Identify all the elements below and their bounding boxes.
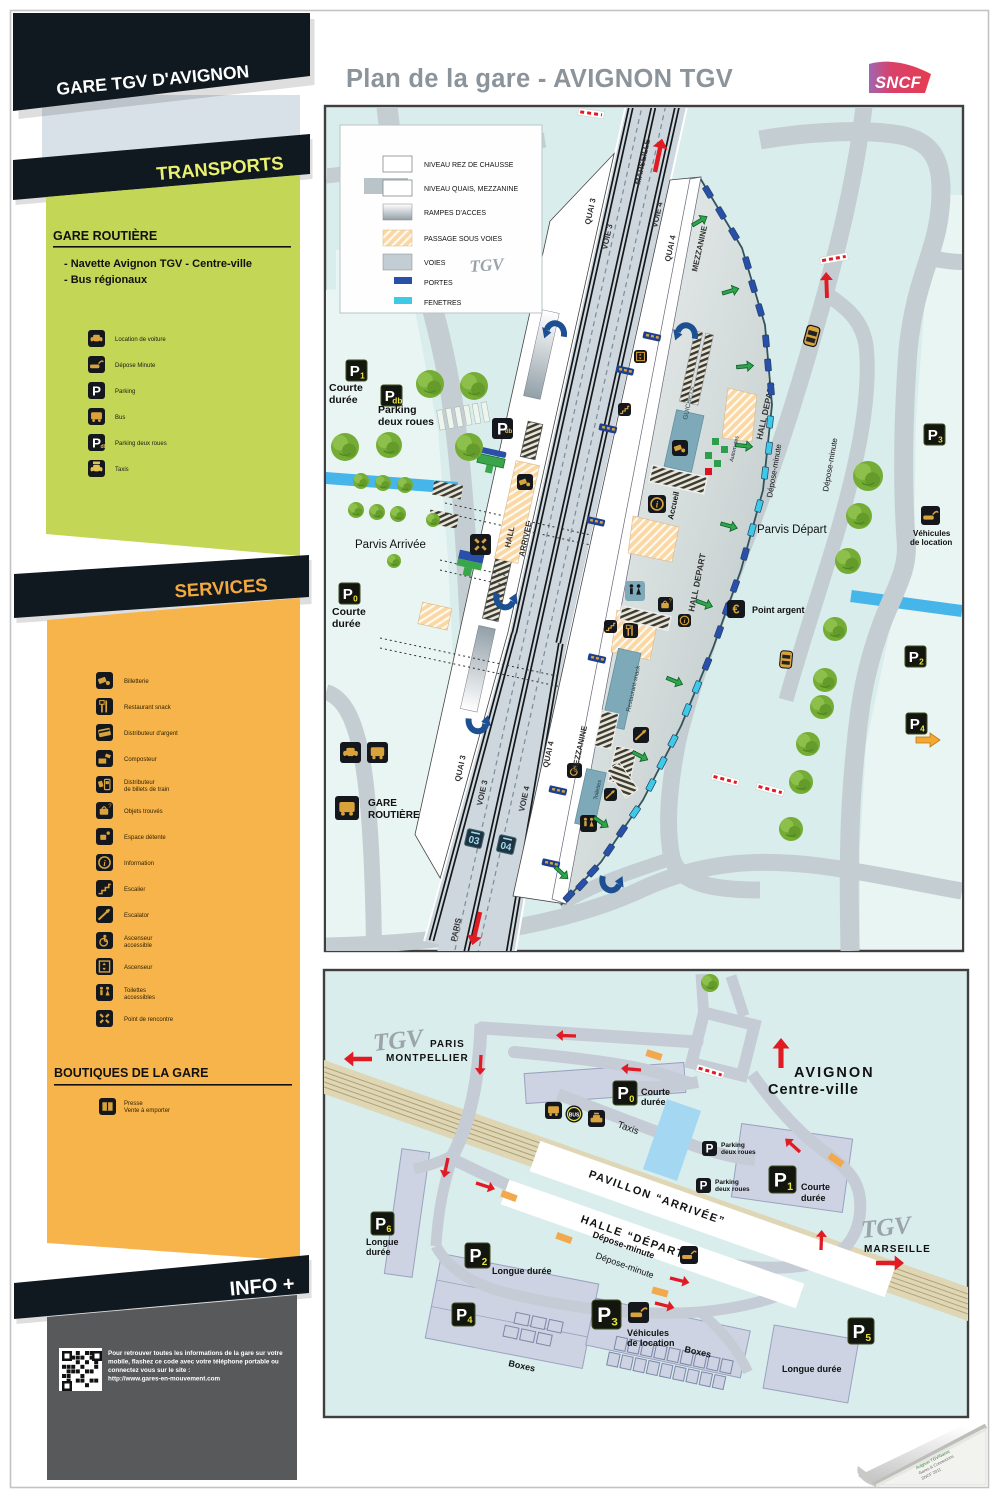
svg-text:P: P: [456, 1305, 467, 1324]
svg-text:Longue durée: Longue durée: [492, 1266, 552, 1276]
svg-text:MONTPELLIER: MONTPELLIER: [386, 1053, 469, 1064]
svg-text:durée: durée: [366, 1247, 391, 1257]
svg-text:durée: durée: [332, 618, 361, 630]
svg-text:Parking: Parking: [378, 404, 417, 416]
svg-text:TGV: TGV: [469, 255, 506, 276]
svg-text:Point argent: Point argent: [752, 605, 805, 615]
svg-text:accessibles: accessibles: [124, 995, 155, 1001]
svg-text:NIVEAU QUAIS, MEZZANINE: NIVEAU QUAIS, MEZZANINE: [424, 186, 518, 193]
svg-text:Courte: Courte: [801, 1182, 830, 1192]
svg-text:Distributeur d'argent: Distributeur d'argent: [124, 731, 178, 737]
svg-text:BOUTIQUES DE LA GARE: BOUTIQUES DE LA GARE: [54, 1066, 208, 1080]
svg-text:FENETRES: FENETRES: [424, 300, 462, 307]
svg-text:deux roues: deux roues: [721, 1149, 756, 1156]
svg-text:Dépose Minute: Dépose Minute: [115, 363, 156, 369]
svg-text:Parking: Parking: [115, 389, 135, 395]
svg-text:P: P: [469, 1246, 481, 1266]
svg-text:durée: durée: [329, 394, 358, 406]
svg-text:db: db: [505, 429, 513, 435]
svg-text:AVIGNON: AVIGNON: [794, 1065, 875, 1081]
svg-text:PASSAGE SOUS VOIES: PASSAGE SOUS VOIES: [424, 236, 502, 243]
svg-text:MARSEILLE: MARSEILLE: [864, 1244, 931, 1255]
svg-text:Ascenseur: Ascenseur: [124, 936, 152, 942]
svg-text:PORTES: PORTES: [424, 280, 453, 287]
svg-text:1: 1: [787, 1181, 793, 1193]
svg-text:Courte: Courte: [332, 606, 366, 618]
svg-text:P: P: [706, 1143, 714, 1156]
svg-text:Parking: Parking: [715, 1179, 739, 1186]
svg-text:€: €: [732, 603, 739, 617]
svg-text:P: P: [597, 1304, 611, 1327]
svg-text:Courte: Courte: [641, 1087, 670, 1097]
svg-text:Parking deux roues: Parking deux roues: [115, 441, 167, 447]
svg-text:TGV: TGV: [860, 1212, 915, 1244]
svg-text:P: P: [928, 427, 938, 444]
svg-text:P: P: [350, 363, 360, 380]
svg-text:?: ?: [669, 598, 672, 604]
svg-text:P: P: [909, 649, 919, 666]
svg-text:P: P: [92, 383, 101, 398]
svg-text:Location de voiture: Location de voiture: [115, 337, 166, 343]
svg-text:Point de rencontre: Point de rencontre: [124, 1017, 174, 1023]
svg-text:http://www.gares-en-mouvement.: http://www.gares-en-mouvement.com: [108, 1376, 220, 1383]
svg-text:Restaurant snack: Restaurant snack: [124, 705, 172, 711]
svg-text:durée: durée: [801, 1193, 826, 1203]
svg-text:Plan de la gare - AVIGNON TGV: Plan de la gare - AVIGNON TGV: [346, 65, 733, 93]
svg-text:db: db: [101, 444, 107, 450]
svg-text:SNCF: SNCF: [875, 74, 922, 92]
svg-text:NIVEAU REZ DE CHAUSSE: NIVEAU REZ DE CHAUSSE: [424, 162, 514, 169]
svg-text:Escalier: Escalier: [124, 887, 145, 893]
svg-text:- Navette Avignon TGV - Centre: - Navette Avignon TGV - Centre-ville: [64, 258, 252, 270]
svg-text:6: 6: [386, 1224, 391, 1234]
svg-text:P: P: [375, 1214, 386, 1233]
svg-text:BUS: BUS: [569, 1113, 580, 1119]
svg-text:Information: Information: [124, 861, 154, 867]
svg-text:- Bus régionaux: - Bus régionaux: [64, 274, 148, 286]
svg-text:Pour retrouver toutes les info: Pour retrouver toutes les informations d…: [108, 1350, 283, 1357]
svg-text:P: P: [853, 1321, 865, 1342]
svg-text:P: P: [617, 1083, 629, 1103]
svg-text:durée: durée: [641, 1097, 666, 1107]
svg-text:Toilettes: Toilettes: [124, 988, 146, 994]
svg-text:Longue durée: Longue durée: [782, 1364, 842, 1374]
svg-text:de billets de train: de billets de train: [124, 787, 169, 793]
svg-text:GARE ROUTIÈRE: GARE ROUTIÈRE: [53, 228, 157, 243]
svg-text:1: 1: [360, 370, 365, 380]
svg-text:4: 4: [920, 723, 925, 733]
svg-text:3: 3: [938, 434, 943, 444]
svg-text:accessible: accessible: [124, 943, 153, 949]
svg-text:Escalator: Escalator: [124, 913, 149, 919]
svg-text:VOIES: VOIES: [424, 260, 446, 267]
svg-text:Centre-ville: Centre-ville: [768, 1082, 859, 1098]
svg-text:3: 3: [611, 1317, 617, 1329]
svg-text:PARIS: PARIS: [430, 1039, 465, 1050]
svg-text:Courte: Courte: [329, 382, 363, 394]
svg-text:Billetterie: Billetterie: [124, 679, 149, 685]
svg-text:Parvis Arrivée: Parvis Arrivée: [355, 539, 426, 551]
svg-text:Véhicules: Véhicules: [627, 1328, 669, 1338]
svg-text:RAMPES D'ACCES: RAMPES D'ACCES: [424, 210, 486, 217]
svg-text:Parvis Départ: Parvis Départ: [757, 524, 827, 536]
svg-text:connectez vous sur le site :: connectez vous sur le site :: [108, 1367, 190, 1374]
svg-text:Bus: Bus: [115, 415, 125, 421]
svg-text:Véhicules: Véhicules: [913, 529, 951, 538]
svg-text:Objets trouvés: Objets trouvés: [124, 809, 163, 815]
svg-text:P: P: [700, 1180, 708, 1193]
svg-text:i: i: [684, 618, 686, 625]
svg-text:Parking: Parking: [721, 1142, 745, 1149]
svg-text:5: 5: [865, 1333, 871, 1344]
svg-text:0: 0: [353, 593, 358, 603]
svg-text:0: 0: [629, 1094, 634, 1105]
svg-text:de location: de location: [627, 1338, 675, 1348]
svg-text:2: 2: [919, 656, 924, 666]
svg-text:2: 2: [482, 1257, 488, 1268]
svg-text:P: P: [910, 716, 920, 733]
svg-text:deux roues: deux roues: [378, 416, 434, 428]
svg-text:Longue: Longue: [366, 1237, 399, 1247]
svg-text:P: P: [343, 586, 353, 603]
svg-text:ROUTIÈRE: ROUTIÈRE: [368, 808, 420, 821]
svg-text:Composteur: Composteur: [124, 757, 157, 763]
svg-text:Ascenseur: Ascenseur: [124, 965, 152, 971]
svg-text:P: P: [774, 1170, 787, 1192]
svg-text:mobile, flashez ce code avec v: mobile, flashez ce code avec votre télép…: [108, 1359, 279, 1366]
svg-text:deux roues: deux roues: [715, 1186, 750, 1193]
svg-text:Vente à emporter: Vente à emporter: [124, 1108, 170, 1114]
svg-text:Distributeur: Distributeur: [124, 780, 155, 786]
svg-text:GARE: GARE: [368, 798, 397, 809]
svg-text:de location: de location: [910, 538, 952, 547]
svg-text:Presse: Presse: [124, 1101, 143, 1107]
svg-text:Espace détente: Espace détente: [124, 835, 166, 841]
svg-text:Taxis: Taxis: [115, 467, 129, 473]
